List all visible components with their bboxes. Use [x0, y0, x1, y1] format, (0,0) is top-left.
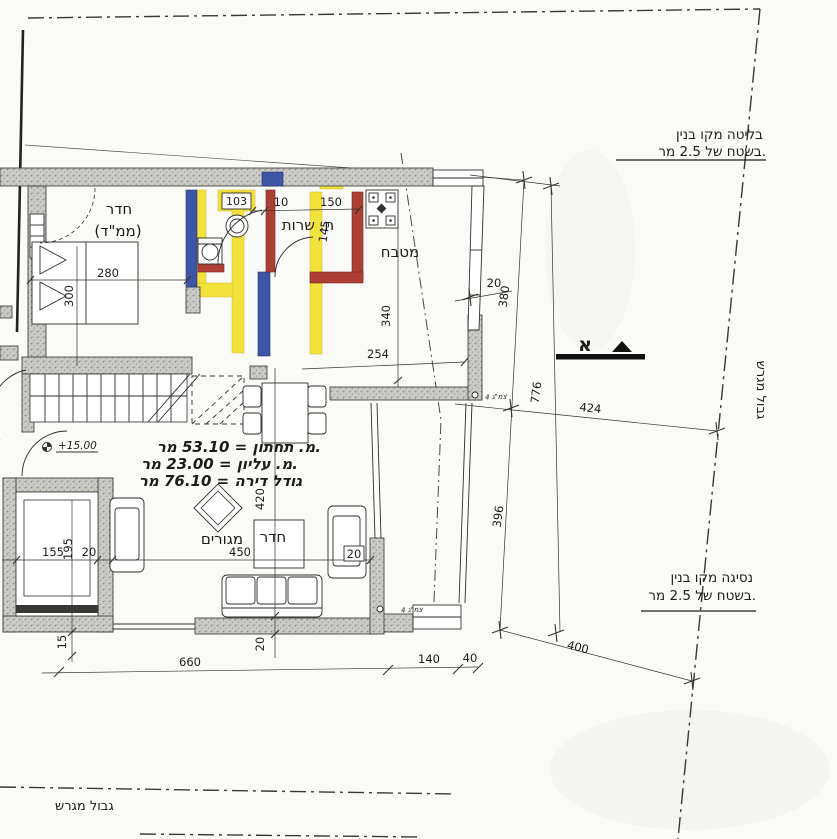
setback-note-line1: נסיגה מקו בנין — [671, 570, 753, 586]
dim-195: 195 — [61, 538, 75, 560]
boundary-label-right: גבול מגרש — [753, 361, 768, 420]
dim-280: 280 — [97, 266, 119, 280]
setback-note-line2: בשטח של 2.5 מר. — [648, 588, 756, 604]
dim-660: 660 — [179, 655, 201, 669]
dim-20-shaft: 20 — [82, 545, 97, 559]
stove-icon — [366, 190, 398, 228]
room-label-kitchen: מטבח — [381, 243, 419, 261]
protrusion-note-line2: בשטח של 2.5 מר. — [658, 144, 766, 160]
wc-number: 103 — [226, 195, 247, 208]
pipe-note-upper: צמ"ג 4 — [485, 392, 508, 401]
room-label-mamad-2: (ממ"ד) — [94, 222, 141, 240]
armchair-left-icon — [110, 498, 144, 572]
dim-254: 254 — [367, 347, 389, 361]
area-total: גודל דירה = 76.10 מר — [139, 472, 302, 490]
armchair-right-icon — [328, 506, 366, 578]
area-lower: מ. תחתון = 53.10 מר. — [157, 438, 321, 456]
dim-424: 424 — [579, 400, 602, 416]
dim-420: 420 — [253, 488, 267, 510]
dim-150: 150 — [320, 195, 342, 209]
scan-smudge — [550, 710, 830, 830]
dim-40: 40 — [463, 651, 478, 665]
room-label-service: ח. שרות — [282, 216, 334, 234]
room-label-living-1: חדר — [260, 528, 286, 546]
area-summary: מ. תחתון = 53.10 מר. מ. עליון = 23.00 מר… — [139, 438, 321, 490]
dim-15: 15 — [55, 635, 69, 650]
elevation-value: +15.00 — [58, 440, 97, 452]
dim-396: 396 — [490, 505, 507, 528]
dim-340: 340 — [379, 305, 393, 327]
dim-20-top: 20 — [487, 276, 502, 290]
room-label-mamad-1: חדר — [106, 200, 132, 218]
section-letter: א — [578, 334, 592, 356]
dim-140: 140 — [418, 652, 440, 666]
dim-20-bottom: 20 — [253, 637, 267, 652]
sofa-icon — [222, 575, 322, 617]
bed-icon — [32, 242, 138, 324]
boundary-label-bottom: גבול מגרש — [55, 799, 114, 814]
dim-776: 776 — [528, 381, 545, 404]
floor-plan-drawing: +15.00 280 300 10 150 145 340 254 420 20 — [0, 0, 837, 839]
dim-20-wall: 20 — [347, 547, 362, 561]
area-upper: מ. עליון = 23.00 מר. — [141, 455, 298, 473]
floor-plan-sheet: +15.00 280 300 10 150 145 340 254 420 20 — [0, 0, 837, 839]
dim-10: 10 — [274, 195, 289, 209]
room-label-living-2: מגורים — [201, 530, 243, 548]
scan-smudge — [545, 150, 635, 350]
dim-300: 300 — [62, 285, 76, 307]
protrusion-note-line1: בליטה מקו בנין — [676, 127, 763, 143]
dining-table-icon — [243, 383, 326, 443]
pipe-note-lower: צמ"ג 4 — [401, 605, 424, 614]
